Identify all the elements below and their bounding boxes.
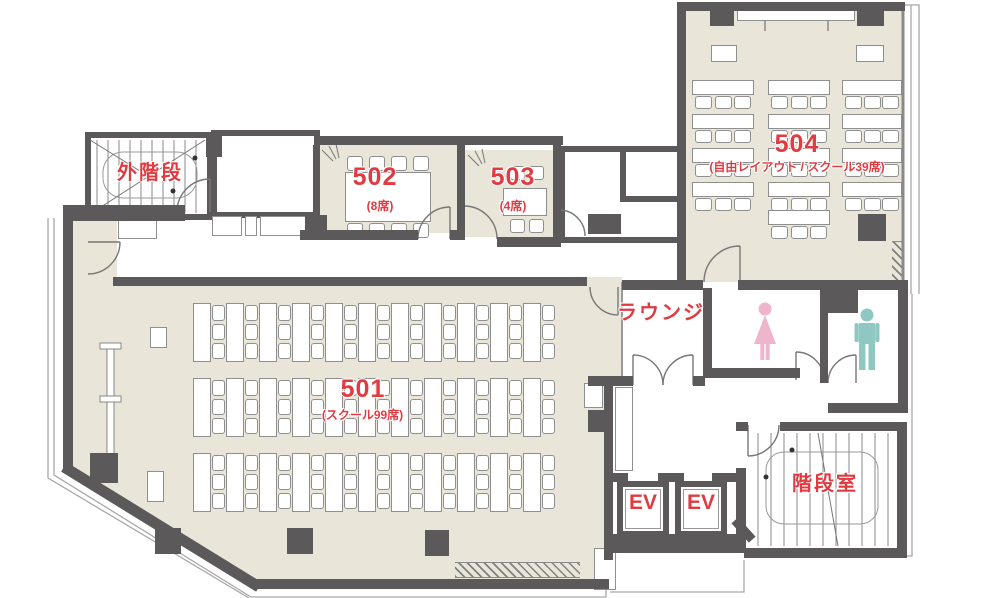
door-501-west — [88, 242, 120, 274]
stairwell-label: 階段室 — [775, 474, 875, 495]
column — [287, 528, 313, 554]
wall — [828, 403, 906, 413]
wall — [736, 422, 748, 431]
wall — [703, 368, 800, 378]
door-504 — [704, 246, 740, 282]
door-utility — [559, 210, 585, 236]
wall — [620, 196, 677, 202]
wall — [620, 152, 626, 198]
column — [710, 2, 734, 26]
room-504-number: 504 — [762, 131, 832, 157]
wall — [113, 277, 587, 286]
column — [155, 528, 181, 554]
column — [588, 214, 621, 234]
outside-stairs-label: 外階段 — [95, 163, 205, 184]
wall — [897, 422, 907, 558]
wall — [604, 534, 746, 553]
wall — [206, 135, 222, 157]
wall — [63, 205, 73, 473]
wall — [703, 288, 712, 372]
lounge-label: ラウンジ — [613, 303, 709, 324]
door-502 — [418, 207, 450, 239]
door-arcs — [88, 179, 856, 456]
column — [588, 410, 607, 432]
female-restroom-icon — [751, 302, 779, 364]
wall — [693, 376, 705, 386]
wall — [658, 473, 684, 482]
room-503-number: 503 — [478, 164, 548, 190]
column — [857, 2, 884, 26]
wall — [820, 288, 828, 383]
door-stairwell — [748, 425, 779, 456]
elevator-1-label: EV — [617, 492, 669, 514]
double-door-right — [663, 355, 693, 385]
room-502-capacity: (8席) — [345, 200, 415, 213]
double-door-left — [633, 355, 663, 385]
wall — [588, 376, 633, 386]
wall — [497, 237, 555, 247]
column — [858, 214, 886, 241]
wall — [450, 230, 465, 240]
wall — [604, 378, 613, 560]
room-504-capacity: (自由レイアウト / スクール39席) — [697, 161, 897, 174]
wall — [677, 2, 686, 282]
floor-plan: 外階段 502 (8席) 503 (4席) 504 (自由レイアウト / スクー… — [0, 0, 981, 598]
wall — [252, 579, 609, 589]
wall — [457, 145, 465, 237]
room-501-capacity: (スクール99席) — [295, 409, 430, 422]
coat-rack — [100, 343, 121, 455]
male-restroom-icon — [853, 308, 881, 372]
room-503-capacity: (4席) — [478, 200, 548, 213]
room-501-number: 501 — [328, 376, 398, 402]
wall — [320, 136, 563, 145]
wall — [63, 205, 185, 221]
wall — [898, 280, 908, 413]
column — [90, 453, 118, 483]
wall — [744, 548, 907, 558]
column — [425, 530, 449, 556]
wall — [553, 140, 561, 247]
wall — [622, 280, 703, 290]
elevator-2-label: EV — [675, 492, 727, 514]
door-male-restroom — [828, 355, 856, 383]
wall — [604, 473, 628, 482]
column — [305, 215, 327, 236]
wall — [780, 422, 907, 431]
room-502-number: 502 — [340, 164, 410, 190]
